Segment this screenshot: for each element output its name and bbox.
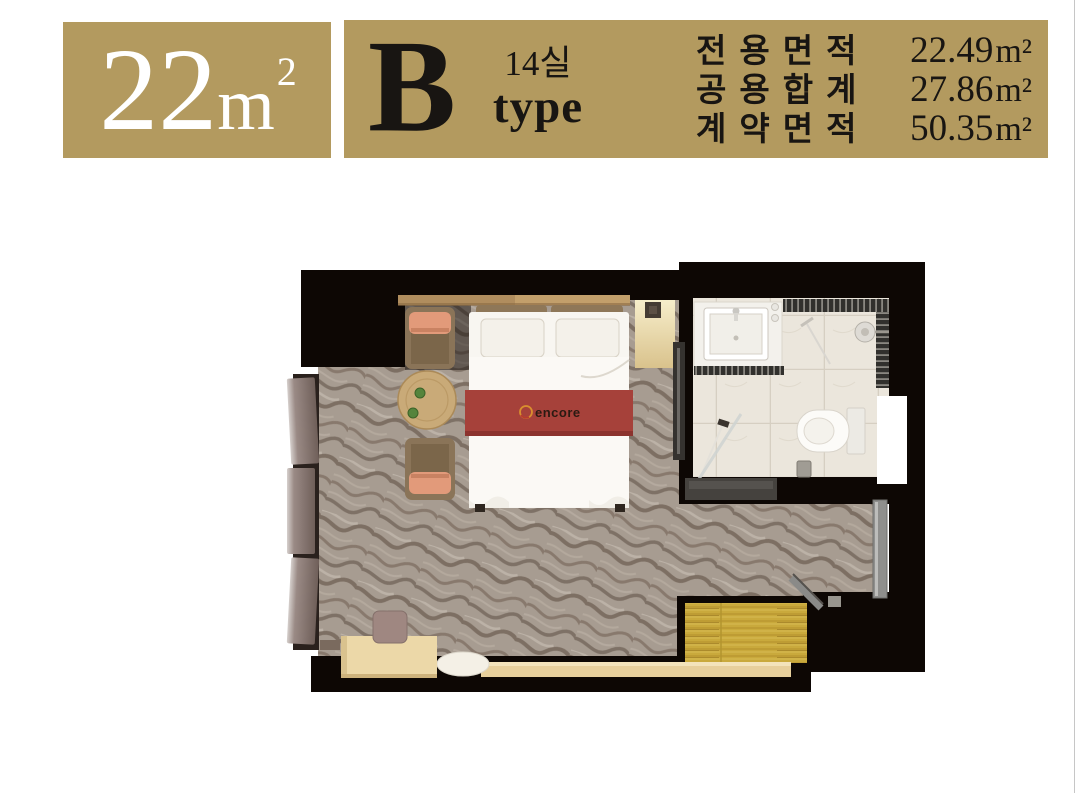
area-table: 전용면적 22.49m² 공용합계 27.86m² 계약면적 50.35m²	[696, 32, 1032, 148]
toilet	[797, 408, 865, 454]
pillow	[481, 319, 544, 357]
armchair-bottom	[405, 438, 455, 500]
pillow	[556, 319, 619, 357]
row-label: 공용합계	[696, 72, 869, 110]
sink-grate	[694, 366, 784, 375]
bathroom-sink	[694, 302, 784, 375]
table-row: 전용면적 22.49m²	[696, 32, 1032, 70]
area-badge-text: 22m2	[99, 22, 295, 158]
plant	[408, 408, 418, 418]
nightstand	[635, 300, 675, 368]
coffee-table	[398, 371, 456, 429]
type-badge: B 14실 type 전용면적 22.49m² 공용합계 27.86m² 계약면…	[344, 20, 1048, 158]
area-number: 22	[99, 24, 217, 155]
type-letter: B	[368, 20, 456, 152]
room-count: 14실	[484, 44, 592, 84]
draped-linen	[437, 652, 489, 676]
desk-chair	[373, 611, 407, 643]
shower-grate-top	[783, 299, 889, 312]
entry-mat	[685, 603, 807, 663]
floorplan-rendering: encore	[285, 262, 935, 710]
unit-plan-page: 22m2 B 14실 type 전용면적 22.49m² 공용합계 27.86m…	[0, 0, 1075, 793]
row-value: 22.49m²	[910, 32, 1032, 71]
floorplan: encore	[285, 262, 935, 710]
table-row: 공용합계 27.86m²	[696, 71, 1032, 109]
armchair-top	[405, 307, 455, 369]
headboard-shelf	[398, 295, 630, 306]
area-superscript: 2	[277, 49, 297, 94]
plant	[415, 388, 425, 398]
bathroom	[673, 298, 889, 500]
row-value: 27.86m²	[910, 71, 1032, 110]
bed: encore	[465, 305, 633, 512]
table-row: 계약면적 50.35m²	[696, 110, 1032, 148]
wall-niche	[877, 396, 907, 484]
trash-bin	[797, 461, 811, 477]
type-word: type	[484, 84, 592, 130]
area-badge: 22m2	[63, 22, 331, 158]
console-ledge	[481, 662, 791, 677]
bathroom-door-frame	[685, 478, 777, 500]
side-ledge	[320, 640, 340, 650]
type-stack: 14실 type	[484, 44, 592, 130]
bed-brand-logo: encore	[535, 405, 581, 420]
shower-grate-side	[876, 312, 889, 388]
row-value: 50.35m²	[910, 110, 1032, 149]
door-stop	[828, 596, 841, 607]
bed-runner: encore	[465, 390, 633, 436]
row-label: 계약면적	[696, 111, 869, 149]
row-label: 전용면적	[696, 33, 869, 71]
area-unit: m	[217, 64, 275, 146]
window-wall	[287, 374, 319, 650]
